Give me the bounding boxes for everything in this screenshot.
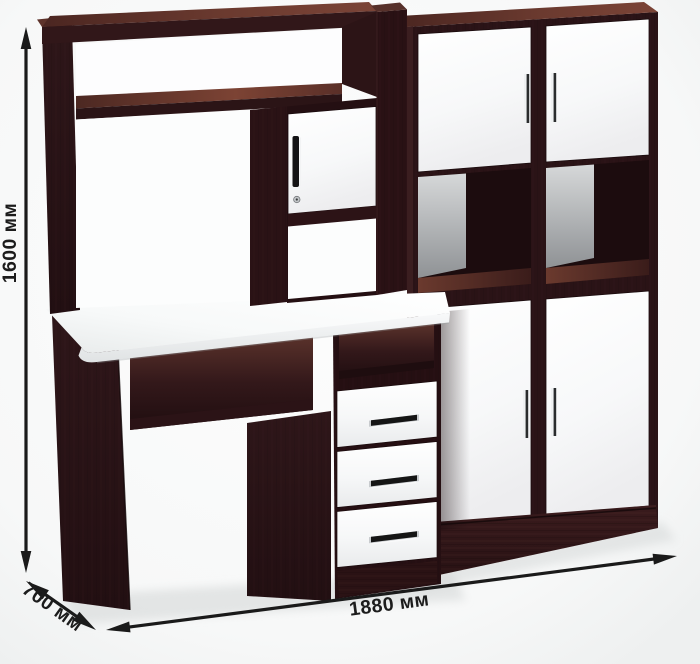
door-handle-icon — [524, 74, 529, 123]
drawer-1 — [337, 381, 437, 448]
drawer-pedestal — [333, 318, 441, 599]
product-image-desk-set: 1600 мм 1880 мм 700 мм — [0, 0, 700, 664]
pedestal-side-panel — [247, 411, 331, 601]
furniture-render: 1600 мм 1880 мм 700 мм — [0, 0, 700, 664]
door-handle-icon — [551, 73, 556, 122]
cell-back-panel — [546, 165, 594, 269]
hutch-open-area — [76, 110, 250, 308]
hutch-divider-column — [250, 107, 287, 307]
bookcase-open-cell-right — [546, 160, 649, 284]
desk — [46, 292, 450, 610]
bookcase-door-bottom-right — [546, 291, 649, 515]
cell-back-panel — [418, 174, 466, 279]
drawer-3 — [337, 502, 437, 568]
cast-shadow — [437, 309, 470, 530]
bookcase-open-cell-left — [418, 168, 531, 293]
height-dimension-label: 1600 мм — [0, 203, 21, 283]
door-handle-icon — [551, 388, 556, 436]
hutch — [37, 2, 407, 314]
keyhole-icon — [294, 196, 300, 202]
door-handle-icon — [523, 390, 528, 438]
hutch-corner-post — [342, 12, 377, 97]
hutch-cabinet-door — [288, 107, 376, 215]
hutch-right-column — [371, 3, 407, 296]
bookcase-door-top-right — [546, 19, 649, 162]
hutch-open-below-cabinet — [288, 219, 376, 300]
bookcase-door-top-left — [418, 27, 531, 172]
drawer-2 — [337, 442, 437, 508]
